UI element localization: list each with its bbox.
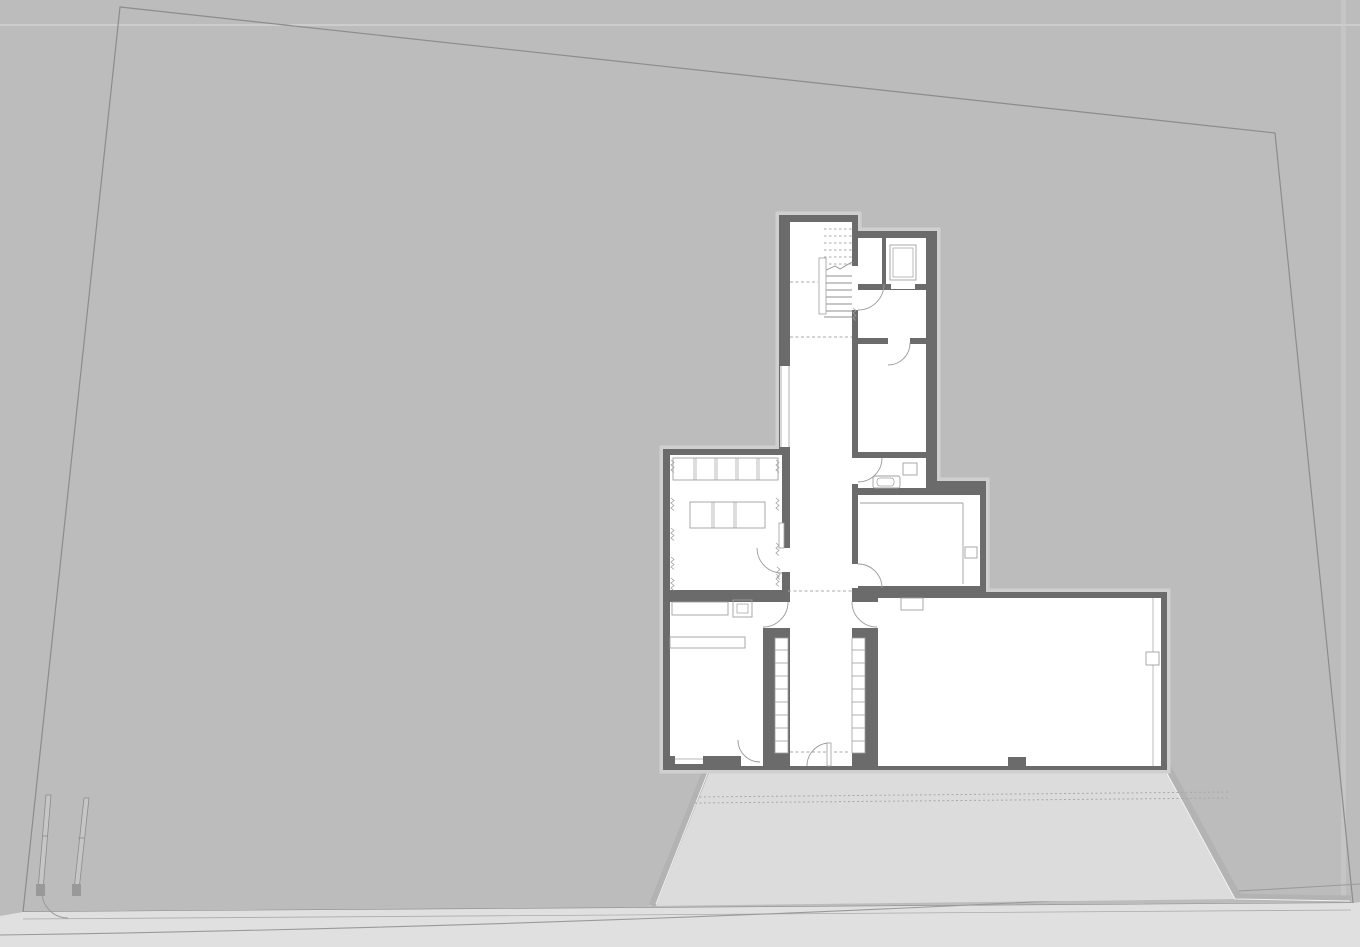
floor-plan-drawing xyxy=(0,0,1360,947)
site-plan xyxy=(0,0,1360,947)
